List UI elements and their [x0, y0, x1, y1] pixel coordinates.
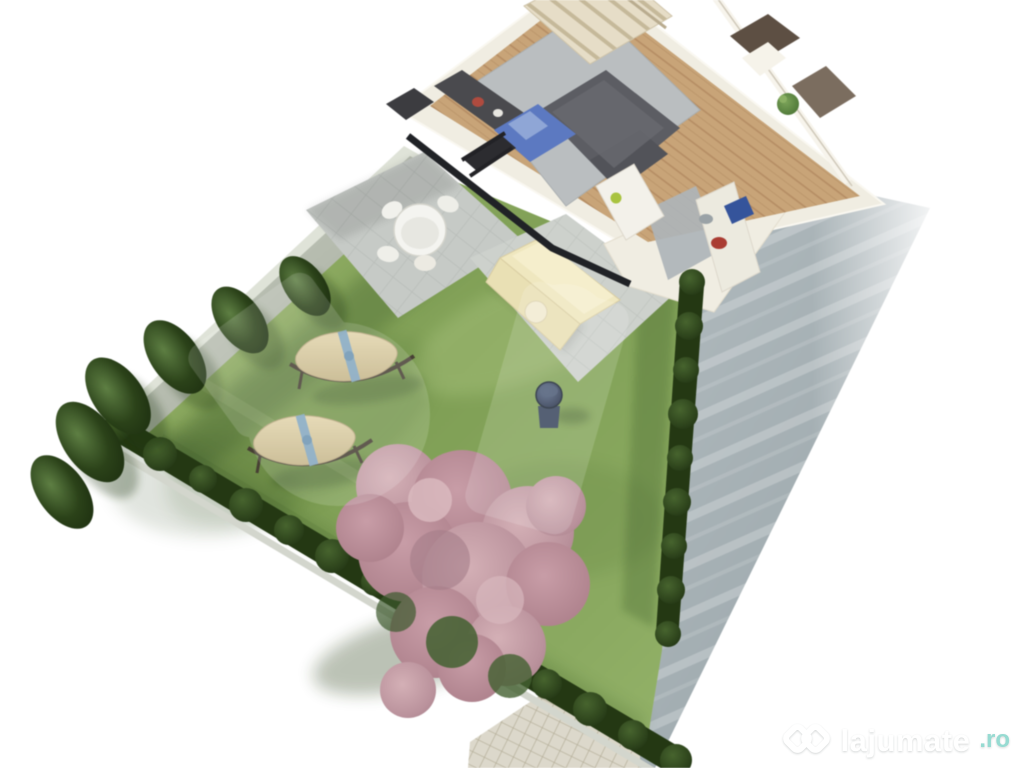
red-pot: [711, 237, 727, 249]
terrace-side-table: [414, 255, 436, 271]
sink: [699, 214, 713, 224]
decor-red: [472, 97, 484, 107]
floorplan-3d-render: [0, 0, 1024, 768]
watermark-tld-text: .ro: [979, 726, 1010, 754]
apple: [611, 193, 622, 204]
lajumate-logo-icon: [782, 720, 834, 760]
tree-foliage-green: [426, 616, 478, 668]
render-canvas: lajumate.ro: [0, 0, 1024, 768]
decor-white: [493, 109, 503, 117]
watermark-brand-text: lajumate: [841, 725, 971, 756]
site-watermark: lajumate.ro: [782, 720, 1010, 760]
